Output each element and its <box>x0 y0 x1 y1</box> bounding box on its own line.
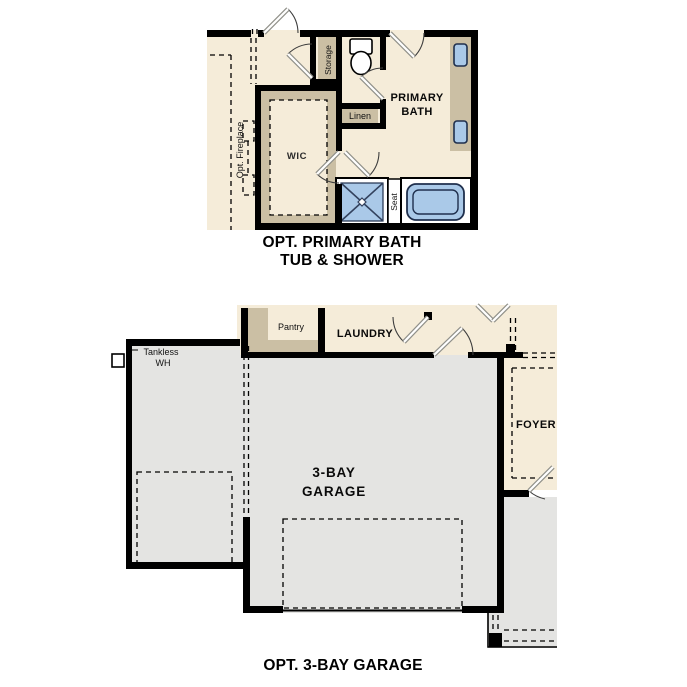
wic-label: WIC <box>287 151 307 162</box>
primary-bath-label-2: BATH <box>401 106 432 118</box>
door-swing-icon <box>264 9 298 33</box>
garage-label-1: 3-BAY <box>312 465 355 480</box>
tankless-wh-label-1: Tankless <box>143 347 179 357</box>
linen-label: Linen <box>349 111 371 121</box>
primary-bath-title-line1: OPT. PRIMARY BATH <box>263 234 422 251</box>
floorplan-sheet: Storage PRIMARY BATH Linen WIC Opt. Fire… <box>0 0 687 687</box>
tub-icon <box>401 178 477 226</box>
sink-icon <box>454 121 467 143</box>
sink-icon <box>454 44 467 66</box>
garage-label-2: GARAGE <box>302 484 366 499</box>
tankless-wh-label-2: WH <box>156 358 171 368</box>
garage-title: OPT. 3-BAY GARAGE <box>263 657 422 674</box>
opt-fireplace-label: Opt. Fireplace <box>235 122 245 179</box>
toilet-icon <box>350 39 372 75</box>
pantry-label: Pantry <box>278 322 305 332</box>
seat-label: Seat <box>389 193 399 211</box>
foyer-label: FOYER <box>516 419 556 431</box>
laundry-label: LAUNDRY <box>337 328 393 340</box>
shower-icon <box>336 178 388 226</box>
storage-label: Storage <box>323 45 333 75</box>
floorplan-svg: Storage PRIMARY BATH Linen WIC Opt. Fire… <box>0 0 687 687</box>
porch-post <box>489 633 502 647</box>
primary-bath-title-line2: TUB & SHOWER <box>280 252 404 269</box>
primary-bath-plan: Storage PRIMARY BATH Linen WIC Opt. Fire… <box>207 9 478 269</box>
primary-bath-label-1: PRIMARY <box>390 92 443 104</box>
garage-plan: Tankless WH Pantry LAUNDRY 3-BAY GARAGE … <box>112 305 557 674</box>
